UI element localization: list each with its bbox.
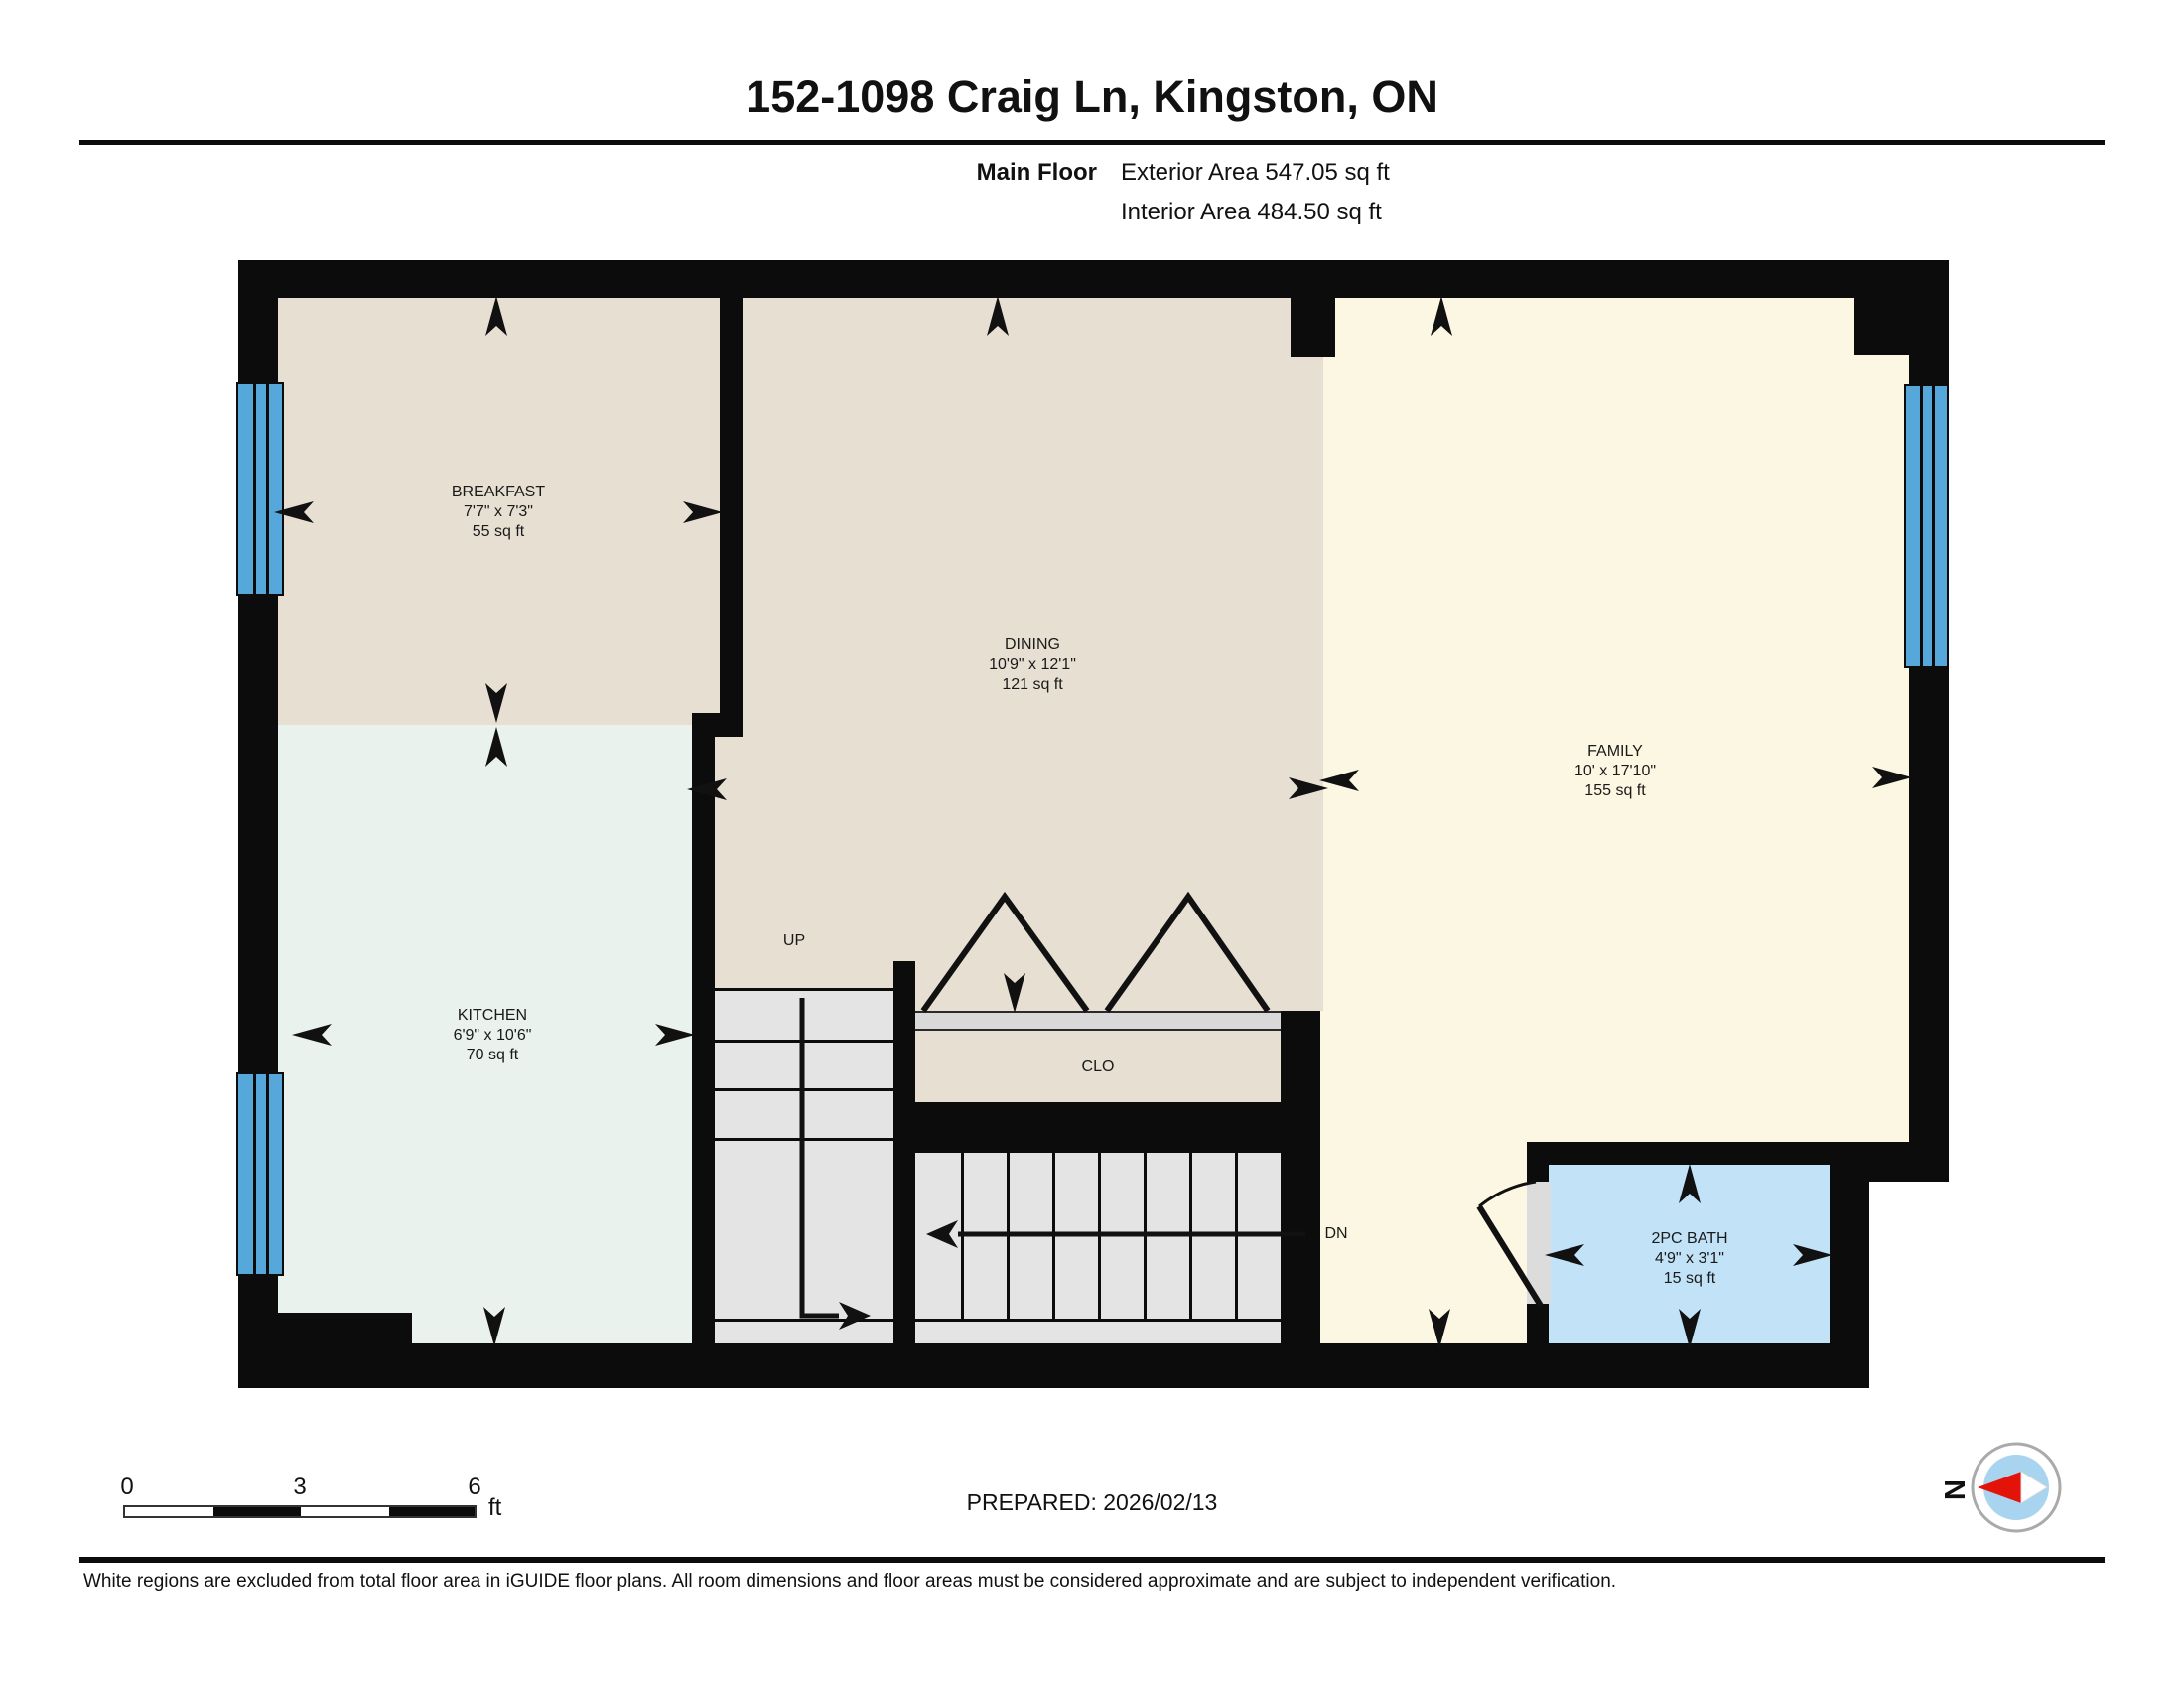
dim-arrow-down: [483, 681, 509, 725]
window-pane-line: [266, 384, 269, 594]
window-pane-line: [253, 384, 256, 594]
wall-dining-family-pillar: [1291, 298, 1335, 357]
family-label: FAMILY 10' x 17'10" 155 sq ft: [1574, 742, 1656, 801]
room-area: 15 sq ft: [1651, 1269, 1727, 1289]
kitchen-floor-lower: [412, 1313, 692, 1343]
breakfast-label: BREAKFAST 7'7" x 7'3" 55 sq ft: [452, 483, 545, 542]
stairs-down-label: DN: [1324, 1225, 1347, 1243]
window-pane-line: [253, 1074, 256, 1274]
room-name: 2PC BATH: [1651, 1229, 1727, 1249]
scale-segment: [125, 1507, 213, 1516]
dim-arrow-up: [985, 294, 1011, 338]
scale-bar: [123, 1505, 477, 1518]
dim-arrow-left: [1317, 768, 1361, 793]
dim-arrow-right: [681, 499, 725, 525]
wall-kitchen-stairs: [692, 884, 715, 1343]
room-name: KITCHEN: [454, 1006, 532, 1026]
window-kitchen: [236, 1072, 284, 1276]
dim-arrow-right: [1870, 765, 1914, 790]
dim-arrow-right: [653, 1022, 697, 1048]
wall-stairs-family: [1281, 1011, 1320, 1343]
scale-segment: [389, 1507, 475, 1516]
window-breakfast: [236, 382, 284, 596]
scale-segment: [213, 1507, 301, 1516]
closet-label: CLO: [1082, 1058, 1115, 1076]
floorplan-page: 152-1098 Craig Ln, Kingston, ON Main Flo…: [0, 0, 2184, 1688]
window-pane-line: [1920, 386, 1923, 666]
compass-north-label: N: [1940, 1479, 1973, 1500]
scale-tick-6: 6: [468, 1474, 480, 1501]
bath-label: 2PC BATH 4'9" x 3'1" 15 sq ft: [1651, 1229, 1727, 1289]
dim-arrow-left: [685, 776, 729, 802]
room-dims: 6'9" x 10'6": [454, 1026, 532, 1046]
room-dims: 10' x 17'10": [1574, 762, 1656, 781]
room-name: DINING: [989, 635, 1076, 655]
dining-label: DINING 10'9" x 12'1" 121 sq ft: [989, 635, 1076, 695]
window-pane-line: [266, 1074, 269, 1274]
family-floor-main: [1323, 355, 1909, 1011]
scale-unit: ft: [488, 1494, 501, 1522]
footer-disclaimer: White regions are excluded from total fl…: [83, 1571, 1616, 1593]
scale-tick-0: 0: [120, 1474, 133, 1501]
prepared-date: PREPARED: 2026/02/13: [967, 1489, 1218, 1516]
room-area: 70 sq ft: [454, 1046, 532, 1065]
scale-tick-3: 3: [293, 1474, 306, 1501]
wall-closet-bottom: [893, 1102, 1320, 1150]
dim-arrow-up: [483, 294, 509, 338]
dim-arrow-down: [1427, 1307, 1452, 1350]
dim-arrow-up: [1677, 1162, 1703, 1205]
dim-arrow-right: [1791, 1242, 1835, 1268]
dim-arrow-left: [1543, 1242, 1586, 1268]
excluded-region: [1869, 1182, 1949, 1388]
dim-arrow-up: [1429, 294, 1454, 338]
wall-breakfast-dining-foot: [692, 713, 743, 737]
room-dims: 4'9" x 3'1": [1651, 1249, 1727, 1269]
stairs-up-label: UP: [783, 932, 805, 950]
stairs-up-direction-arrow: [745, 988, 884, 1345]
footer-divider: [79, 1557, 2105, 1563]
compass-icon: [1970, 1441, 2063, 1534]
floor-plan: BREAKFAST 7'7" x 7'3" 55 sq ft DINING 10…: [0, 0, 2184, 1688]
window-pane-line: [1932, 386, 1935, 666]
room-area: 155 sq ft: [1574, 781, 1656, 801]
wall-stairs-closet: [893, 961, 915, 1343]
family-floor-lowerright: [1527, 1011, 1909, 1142]
closet-bifold-doors: [908, 889, 1286, 1016]
room-name: BREAKFAST: [452, 483, 545, 502]
stair-landing-line: [915, 1319, 1281, 1322]
room-area: 121 sq ft: [989, 675, 1076, 695]
dim-arrow-down: [1677, 1307, 1703, 1350]
room-dims: 7'7" x 7'3": [452, 502, 545, 522]
stairs-down-direction-arrow: [923, 1209, 1320, 1259]
kitchen-label: KITCHEN 6'9" x 10'6" 70 sq ft: [454, 1006, 532, 1065]
room-area: 55 sq ft: [452, 522, 545, 542]
dim-arrow-down: [1002, 971, 1027, 1015]
window-family: [1904, 384, 1949, 668]
dim-arrow-down: [481, 1305, 507, 1348]
family-floor-top: [1323, 298, 1854, 355]
dim-arrow-left: [290, 1022, 334, 1048]
room-name: FAMILY: [1574, 742, 1656, 762]
dim-arrow-left: [272, 499, 316, 525]
scale-segment: [301, 1507, 389, 1516]
room-dims: 10'9" x 12'1": [989, 655, 1076, 675]
dim-arrow-up: [483, 725, 509, 769]
